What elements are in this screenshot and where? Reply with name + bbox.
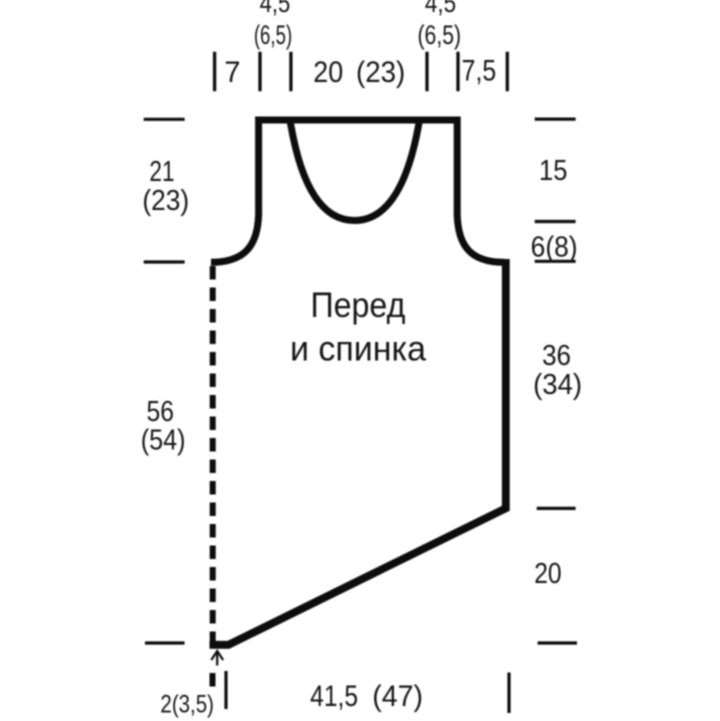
svg-text:20: 20 bbox=[534, 557, 561, 589]
svg-text:2(3,5): 2(3,5) bbox=[160, 689, 214, 717]
svg-text:(23): (23) bbox=[356, 56, 405, 89]
svg-text:(6,5): (6,5) bbox=[254, 19, 292, 49]
svg-text:(23): (23) bbox=[142, 184, 189, 216]
svg-text:15: 15 bbox=[539, 153, 567, 186]
svg-text:7,5: 7,5 bbox=[462, 53, 496, 87]
svg-text:(6,5): (6,5) bbox=[417, 20, 461, 50]
svg-text:(47): (47) bbox=[372, 680, 423, 713]
svg-text:6(8): 6(8) bbox=[531, 230, 578, 262]
svg-text:7: 7 bbox=[224, 57, 240, 89]
svg-text:4,5: 4,5 bbox=[425, 0, 456, 19]
svg-text:41,5: 41,5 bbox=[310, 679, 358, 713]
svg-text:и спинка: и спинка bbox=[290, 330, 427, 369]
svg-text:4,5: 4,5 bbox=[260, 0, 291, 19]
svg-text:(34): (34) bbox=[533, 367, 582, 400]
svg-text:20: 20 bbox=[313, 55, 343, 88]
svg-text:(54): (54) bbox=[141, 423, 186, 456]
svg-text:Перед: Перед bbox=[310, 287, 405, 326]
